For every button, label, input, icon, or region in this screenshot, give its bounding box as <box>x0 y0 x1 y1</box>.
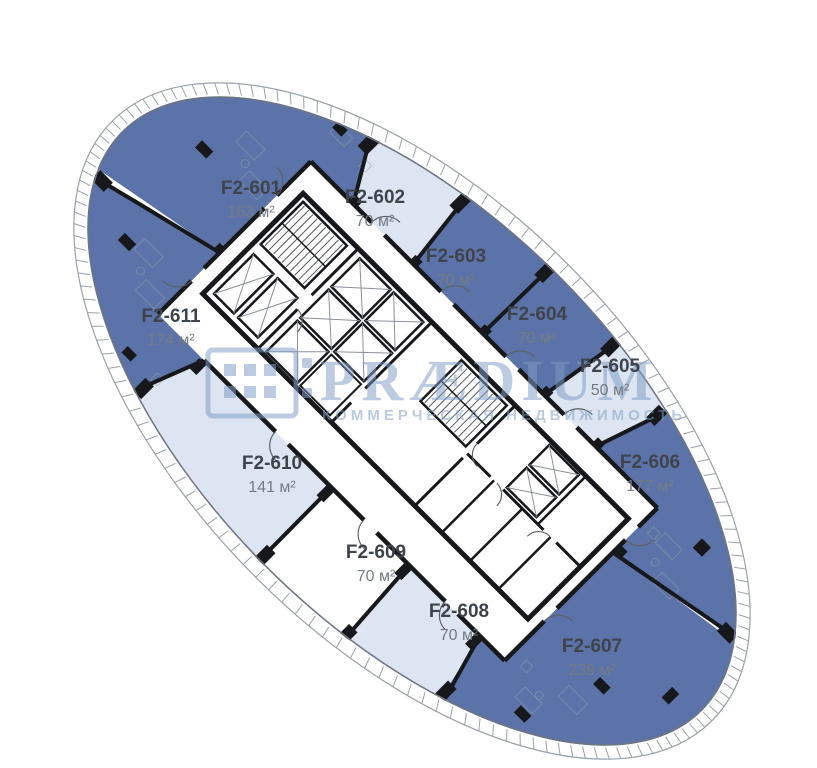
unit-area-f2-611: 174 м² <box>147 332 195 349</box>
unit-area-f2-603: 70 м² <box>437 272 476 289</box>
unit-area-f2-610: 141 м² <box>248 479 296 496</box>
unit-label-f2-611: F2-611 <box>141 306 201 327</box>
unit-label-f2-607: F2-607 <box>562 636 622 657</box>
unit-area-f2-601: 163 м² <box>227 204 275 221</box>
floor-plan-page: PRÆDIUM КОММЕРЧЕСКАЯ НЕДВИЖИМОСТЬ F2-601… <box>0 0 817 768</box>
unit-area-f2-604: 70 м² <box>518 330 557 347</box>
unit-area-f2-606: 177 м² <box>626 478 674 495</box>
unit-area-f2-602: 70 м² <box>356 213 395 230</box>
unit-area-f2-605: 50 м² <box>591 382 630 399</box>
unit-area-f2-609: 70 м² <box>357 568 396 585</box>
unit-label-f2-606: F2-606 <box>620 452 680 473</box>
unit-label-f2-602: F2-602 <box>345 187 405 208</box>
unit-area-f2-608: 70 м² <box>440 627 479 644</box>
unit-area-f2-607: 239 м² <box>568 662 616 679</box>
floor-plan-canvas: PRÆDIUM КОММЕРЧЕСКАЯ НЕДВИЖИМОСТЬ F2-601… <box>0 0 817 768</box>
unit-label-f2-601: F2-601 <box>221 178 282 199</box>
unit-label-f2-604: F2-604 <box>507 304 568 325</box>
unit-label-f2-610: F2-610 <box>242 453 302 474</box>
unit-label-f2-608: F2-608 <box>429 601 489 622</box>
unit-label-f2-603: F2-603 <box>426 246 486 267</box>
watermark-tagline-text: КОММЕРЧЕСКАЯ НЕДВИЖИМОСТЬ <box>322 407 686 424</box>
unit-label-f2-609: F2-609 <box>346 542 406 563</box>
unit-label-f2-605: F2-605 <box>580 356 641 377</box>
